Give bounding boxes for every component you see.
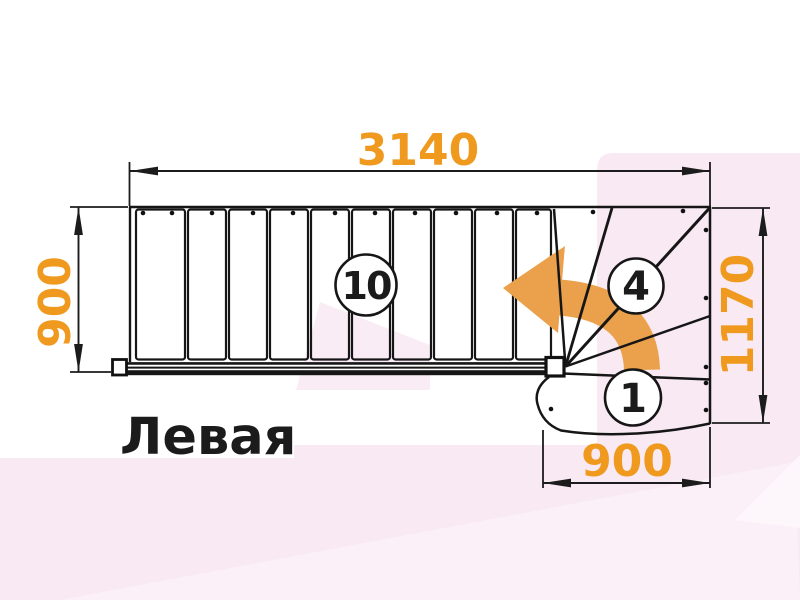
stringer-line-thick [124,370,548,375]
background-facets [0,0,800,600]
stringer-rail [124,362,548,375]
newel-post-left [113,360,127,376]
stair-plan-screenshot: 3140 900 1170 900 10 4 1 Левая [0,0,800,600]
badge-straight-steps-value: 10 [342,264,391,308]
dimension-right-height-value: 1170 [713,254,764,376]
dimension-top-width-value: 3140 [357,125,479,176]
newel-post-pivot [546,358,564,377]
stair-plan-drawing: 3140 900 1170 900 10 4 1 Левая [0,0,800,600]
variant-title: Левая [120,408,296,467]
badge-first-step-value: 1 [619,376,647,422]
badge-winder-steps-value: 4 [622,264,650,310]
dimension-left-depth-value: 900 [30,256,81,348]
dimension-bottom-width-value: 900 [581,436,673,487]
